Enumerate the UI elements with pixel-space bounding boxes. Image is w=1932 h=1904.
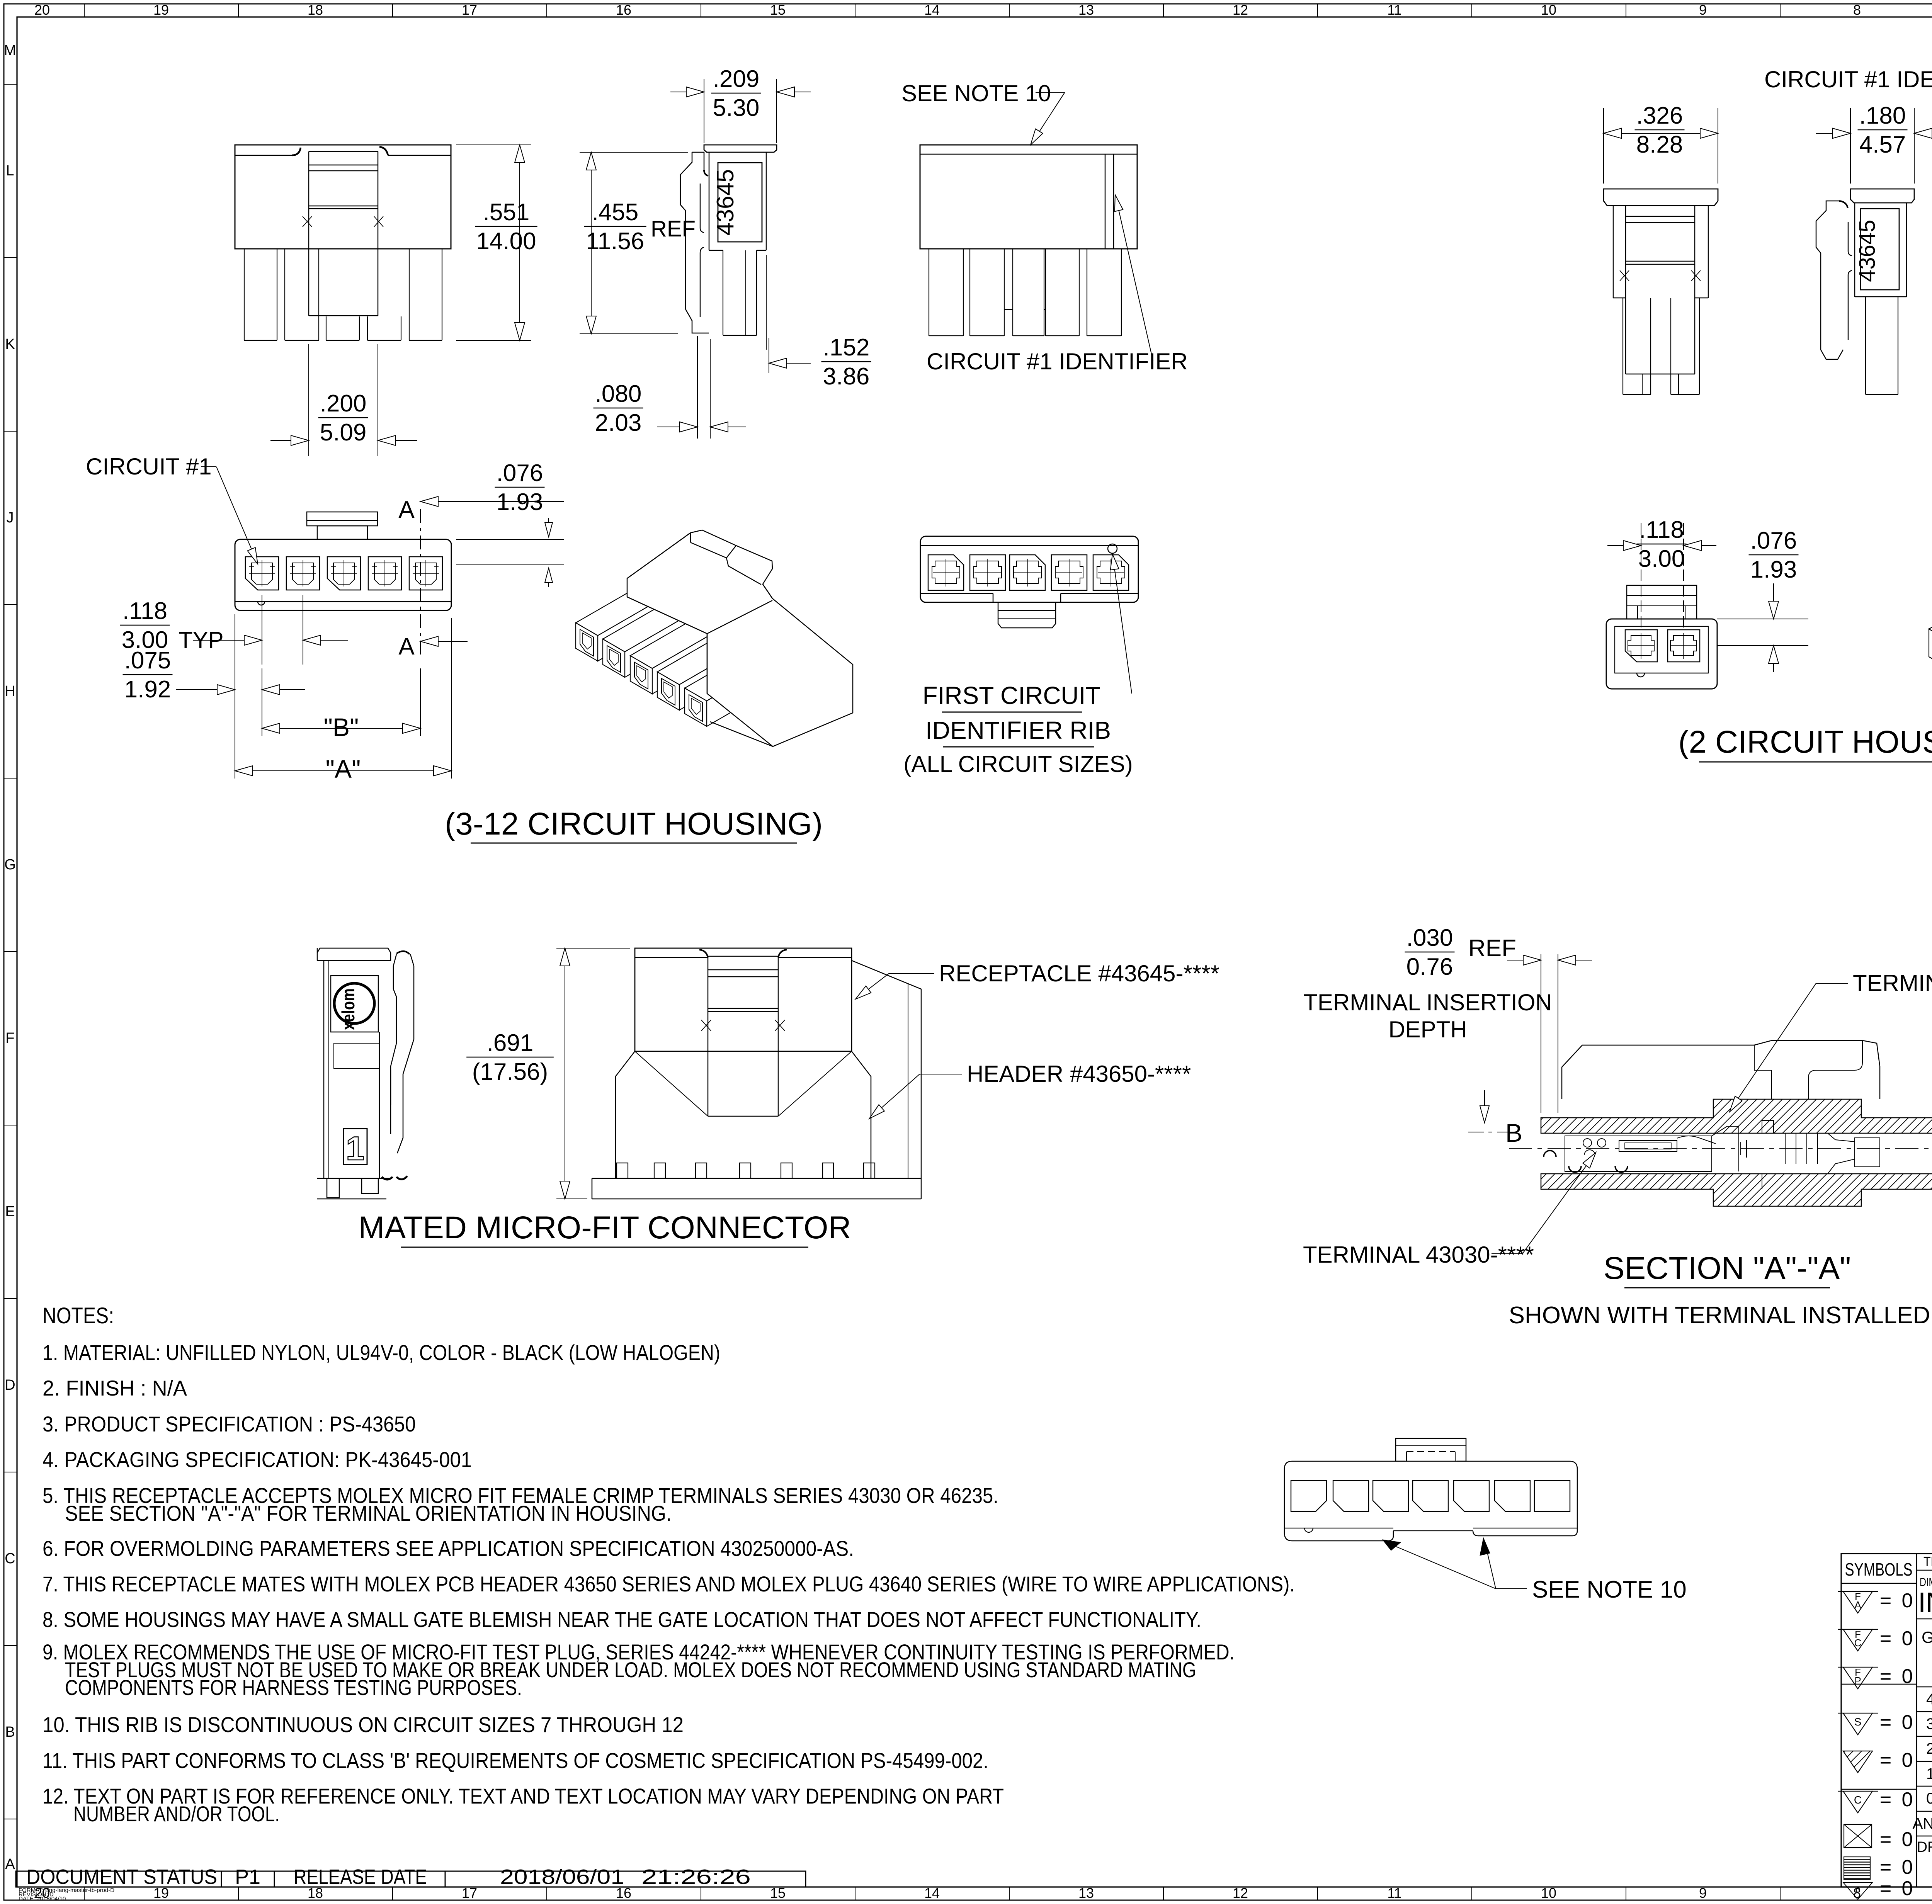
svg-text:0: 0	[1902, 1856, 1913, 1878]
svg-text:M: M	[4, 42, 16, 59]
svg-text:5.09: 5.09	[320, 419, 367, 446]
svg-text:10: 10	[1541, 2, 1556, 18]
svg-text:3 PLACES: 3 PLACES	[1926, 1715, 1932, 1732]
svg-text:SHOWN WITH TERMINAL INSTALLED: SHOWN WITH TERMINAL INSTALLED	[1509, 1302, 1930, 1329]
svg-text:=: =	[1880, 1665, 1891, 1688]
svg-text:A: A	[5, 1856, 15, 1872]
svg-text:1: 1	[346, 1130, 364, 1167]
svg-text:.691: .691	[487, 1030, 534, 1056]
svg-text:SECTION "A"-"A": SECTION "A"-"A"	[1604, 1251, 1851, 1286]
svg-text:17: 17	[462, 2, 477, 18]
svg-text:RELEASE DATE: RELEASE DATE	[294, 1865, 427, 1889]
svg-text:CIRCUIT #1: CIRCUIT #1	[86, 454, 212, 479]
svg-text:1 PLACE: 1 PLACE	[1926, 1765, 1932, 1782]
svg-text:11. THIS PART CONFORMS TO CLA: 11. THIS PART CONFORMS TO CLASS 'B' REQU…	[43, 1748, 988, 1773]
svg-text:.076: .076	[1750, 527, 1797, 554]
svg-text:0: 0	[1902, 1749, 1913, 1771]
svg-text:43645: 43645	[1855, 220, 1880, 282]
svg-text:=: =	[1880, 1856, 1891, 1878]
svg-text:11.56: 11.56	[586, 228, 645, 255]
svg-text:DATE: 2018/04/10: DATE: 2018/04/10	[19, 1895, 66, 1902]
svg-text:12: 12	[1233, 2, 1248, 18]
svg-text:12: 12	[1233, 1885, 1248, 1901]
svg-text:J: J	[7, 510, 14, 526]
svg-text:15: 15	[770, 2, 786, 18]
svg-text:11: 11	[1387, 1885, 1401, 1901]
svg-text:19: 19	[153, 2, 169, 18]
svg-text:COMPONENTS FOR HARNESS TESTING: COMPONENTS FOR HARNESS TESTING PURPOSES.	[65, 1675, 522, 1700]
svg-text:(2 CIRCUIT HOUSING): (2 CIRCUIT HOUSING)	[1678, 724, 1932, 760]
svg-text:REF: REF	[651, 216, 696, 241]
svg-text:A: A	[398, 633, 415, 660]
svg-text:.076: .076	[497, 460, 543, 486]
svg-text:TYP: TYP	[179, 627, 224, 653]
svg-text:.455: .455	[592, 199, 639, 226]
svg-text:SEE NOTE 10: SEE NOTE 10	[901, 80, 1051, 106]
svg-text:L: L	[6, 163, 14, 179]
svg-text:0: 0	[1902, 1711, 1913, 1734]
svg-text:0: 0	[1902, 1627, 1913, 1650]
svg-text:4 PLACES: 4 PLACES	[1926, 1691, 1932, 1708]
svg-text:D: D	[5, 1377, 15, 1393]
svg-text:9: 9	[1699, 2, 1707, 18]
svg-text:1.92: 1.92	[124, 676, 171, 703]
svg-text:P1: P1	[235, 1865, 260, 1889]
svg-text:9: 9	[1699, 1885, 1707, 1901]
svg-text:.209: .209	[713, 66, 760, 92]
svg-text:=: =	[1880, 1589, 1891, 1612]
svg-text:=: =	[1880, 1877, 1891, 1900]
svg-text:7. THIS RECEPTACLE MATES WITH: 7. THIS RECEPTACLE MATES WITH MOLEX PCB …	[43, 1572, 1295, 1596]
svg-text:.030: .030	[1406, 925, 1453, 951]
svg-text:NOTES:: NOTES:	[43, 1303, 114, 1328]
svg-text:DEPTH: DEPTH	[1388, 1017, 1467, 1042]
svg-text:=: =	[1880, 1788, 1891, 1811]
svg-text:IN/MM: IN/MM	[1918, 1587, 1932, 1618]
svg-text:18: 18	[308, 2, 323, 18]
svg-text:C: C	[5, 1550, 15, 1567]
svg-text:"B": "B"	[324, 713, 359, 741]
svg-text:NUMBER AND/OR TOOL.: NUMBER AND/OR TOOL.	[73, 1802, 280, 1826]
svg-text:.118: .118	[122, 598, 167, 624]
svg-text:C: C	[1854, 1637, 1862, 1649]
svg-text:.180: .180	[1859, 102, 1906, 129]
svg-text:6. FOR OVERMOLDING PARAMETERS: 6. FOR OVERMOLDING PARAMETERS SEE APPLIC…	[43, 1536, 854, 1561]
svg-text:14: 14	[924, 2, 940, 18]
svg-text:SEE NOTE 10: SEE NOTE 10	[1532, 1576, 1687, 1603]
svg-text:REF: REF	[1468, 935, 1516, 962]
svg-text:IDENTIFIER RIB: IDENTIFIER RIB	[925, 716, 1111, 744]
svg-text:8: 8	[1853, 2, 1861, 18]
svg-text:8. SOME HOUSINGS MAY HAVE A S: 8. SOME HOUSINGS MAY HAVE A SMALL GATE B…	[43, 1607, 1201, 1632]
svg-text:B: B	[5, 1724, 15, 1740]
svg-text:P: P	[1854, 1675, 1861, 1686]
svg-text:.152: .152	[823, 334, 870, 361]
svg-text:B: B	[1505, 1119, 1522, 1147]
svg-text:1.93: 1.93	[497, 489, 543, 515]
svg-text:.080: .080	[595, 381, 642, 407]
svg-text:DRAFT WHERE APPLICABLE: DRAFT WHERE APPLICABLE	[1917, 1839, 1932, 1855]
svg-text:0.76: 0.76	[1406, 954, 1453, 980]
svg-text:=: =	[1880, 1711, 1891, 1734]
svg-text:DIMENSION UNITS: DIMENSION UNITS	[1920, 1575, 1932, 1589]
svg-text:G: G	[4, 857, 16, 873]
svg-text:THIS DRAWING CONTAINS INFORMAT: THIS DRAWING CONTAINS INFORMATION THAT I…	[1923, 1554, 1932, 1569]
svg-text:4.57: 4.57	[1859, 131, 1906, 158]
svg-text:0: 0	[1902, 1589, 1913, 1612]
svg-text:3.00: 3.00	[1638, 546, 1685, 572]
svg-text:GENERAL TOLERANCES: GENERAL TOLERANCES	[1922, 1628, 1932, 1646]
svg-text:.118: .118	[1639, 517, 1684, 543]
svg-text:xelom: xelom	[338, 988, 358, 1030]
svg-text:(17.56): (17.56)	[472, 1059, 548, 1085]
svg-text:TERMINAL INSERTION: TERMINAL INSERTION	[1303, 989, 1552, 1015]
svg-text:S: S	[1854, 1716, 1862, 1728]
svg-text:=: =	[1880, 1828, 1891, 1851]
svg-text:21:26:26: 21:26:26	[641, 1865, 751, 1889]
svg-text:.551: .551	[483, 199, 530, 226]
svg-text:CIRCUIT #1 IDENTIFIER: CIRCUIT #1 IDENTIFIER	[1764, 66, 1932, 92]
svg-text:5.30: 5.30	[713, 95, 760, 121]
svg-text:2 PLACES: 2 PLACES	[1926, 1740, 1932, 1757]
svg-text:0: 0	[1902, 1788, 1913, 1811]
svg-text:K: K	[5, 336, 15, 352]
svg-text:43645: 43645	[712, 169, 739, 236]
svg-text:=: =	[1880, 1749, 1891, 1771]
svg-text:2018/06/01: 2018/06/01	[500, 1865, 624, 1889]
svg-text:11: 11	[1387, 2, 1401, 18]
svg-text:"A": "A"	[326, 755, 361, 783]
svg-text:.326: .326	[1636, 102, 1683, 129]
svg-text:MATED MICRO-FIT CONNECTOR: MATED MICRO-FIT CONNECTOR	[358, 1210, 851, 1245]
svg-text:3. PRODUCT SPECIFICATION : PS: 3. PRODUCT SPECIFICATION : PS-43650	[43, 1412, 416, 1436]
svg-text:1.93: 1.93	[1750, 556, 1797, 583]
svg-text:10. THIS RIB IS DISCONTINUOUS: 10. THIS RIB IS DISCONTINUOUS ON CIRCUIT…	[43, 1712, 684, 1737]
svg-text:0: 0	[1902, 1665, 1913, 1688]
svg-text:=: =	[1880, 1627, 1891, 1650]
svg-text:2.03: 2.03	[595, 410, 642, 436]
svg-text:ANGULAR TOL: ANGULAR TOL	[1913, 1815, 1932, 1832]
svg-text:HEADER #43650-****: HEADER #43650-****	[967, 1061, 1191, 1087]
svg-text:0 PLACES: 0 PLACES	[1926, 1790, 1932, 1807]
svg-text:E: E	[5, 1204, 15, 1220]
svg-text:TERMINAL STOPS: TERMINAL STOPS	[1853, 970, 1932, 996]
svg-text:0: 0	[1902, 1828, 1913, 1851]
svg-text:0: 0	[1902, 1877, 1913, 1900]
svg-text:C: C	[1854, 1794, 1862, 1806]
svg-text:.075: .075	[124, 647, 171, 674]
svg-text:H: H	[5, 683, 15, 699]
svg-text:F: F	[5, 1030, 14, 1046]
svg-text:RECEPTACLE #43645-****: RECEPTACLE #43645-****	[939, 960, 1219, 986]
svg-text:10: 10	[1541, 1885, 1556, 1901]
svg-text:SYMBOLS: SYMBOLS	[1845, 1559, 1913, 1579]
svg-text:(ALL CIRCUIT SIZES): (ALL CIRCUIT SIZES)	[903, 751, 1133, 777]
svg-text:4. PACKAGING SPECIFICATION: P: 4. PACKAGING SPECIFICATION: PK-43645-001	[43, 1447, 472, 1472]
svg-text:c: c	[1855, 1884, 1860, 1895]
svg-text:3.86: 3.86	[823, 363, 870, 390]
svg-text:TERMINAL 43030-****: TERMINAL 43030-****	[1303, 1242, 1534, 1268]
svg-text:1. MATERIAL: UNFILLED NYLON,: 1. MATERIAL: UNFILLED NYLON, UL94V-0, CO…	[43, 1340, 720, 1365]
svg-text:13: 13	[1078, 2, 1094, 18]
svg-text:FIRST CIRCUIT: FIRST CIRCUIT	[922, 682, 1100, 709]
svg-text:A: A	[1854, 1599, 1861, 1611]
svg-text:13: 13	[1078, 1885, 1094, 1901]
svg-text:A: A	[398, 496, 415, 523]
svg-text:.200: .200	[320, 390, 367, 417]
svg-text:20: 20	[34, 2, 50, 18]
svg-text:CIRCUIT #1 IDENTIFIER: CIRCUIT #1 IDENTIFIER	[927, 348, 1188, 374]
svg-text:16: 16	[616, 2, 631, 18]
svg-text:DOCUMENT STATUS: DOCUMENT STATUS	[26, 1865, 217, 1889]
svg-text:SEE SECTION "A"-"A" FOR TERMI: SEE SECTION "A"-"A" FOR TERMINAL ORIENTA…	[65, 1501, 672, 1525]
svg-text:2. FINISH : N/A: 2. FINISH : N/A	[43, 1376, 187, 1400]
svg-text:8.28: 8.28	[1636, 131, 1683, 158]
svg-text:14: 14	[924, 1885, 940, 1901]
svg-text:14.00: 14.00	[476, 228, 536, 255]
svg-text:(3-12 CIRCUIT HOUSING): (3-12 CIRCUIT HOUSING)	[445, 806, 823, 841]
